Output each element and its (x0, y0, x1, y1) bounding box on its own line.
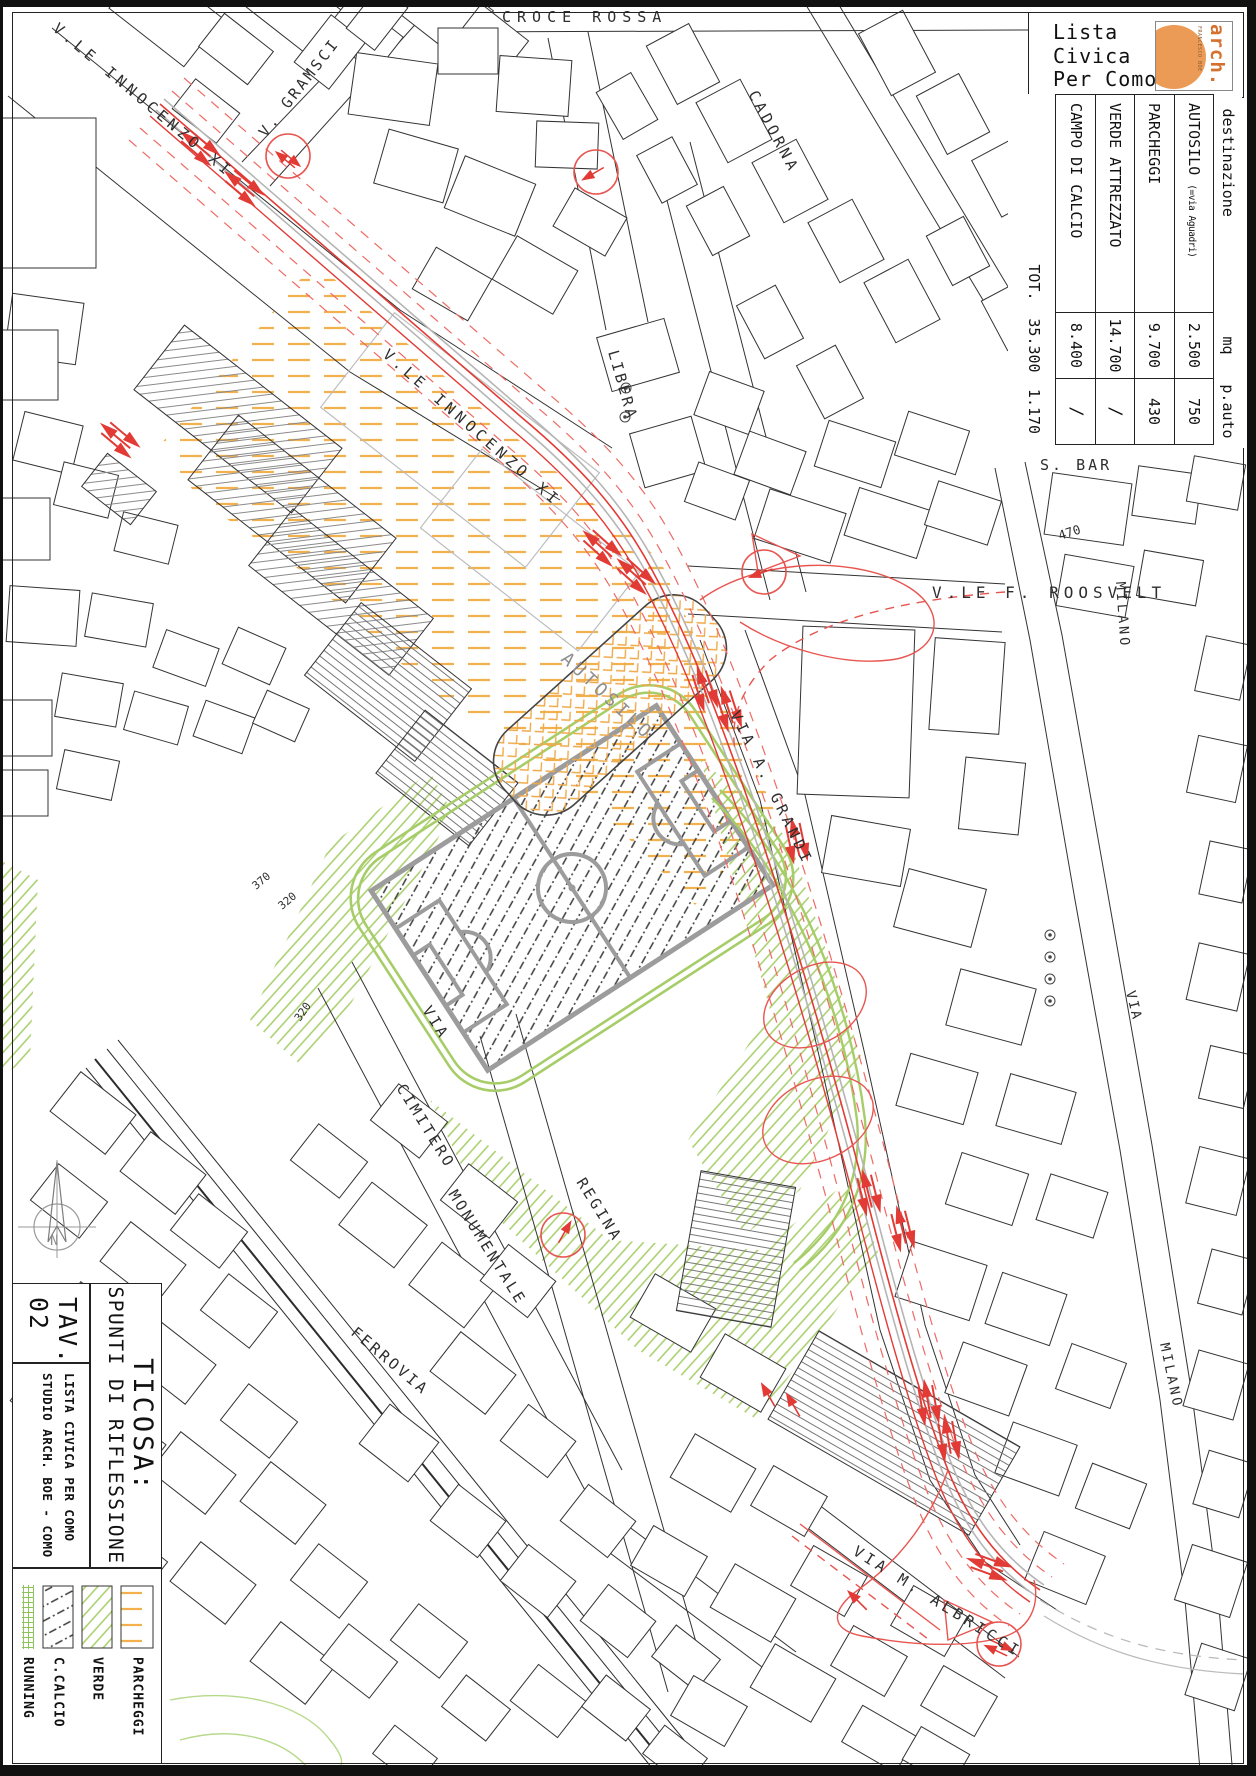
cell-pauto: 750 (1174, 379, 1213, 445)
scan-edge-bottom (0, 1765, 1256, 1776)
legend-label: RUNNING (20, 1657, 35, 1719)
program-table: destinazione mq p.auto AUTOSILO (=via Ag… (1012, 94, 1242, 445)
header-block: Lista Civica Per Como FRANCESCO BOE arch… (1028, 12, 1244, 98)
tav-label: TAV. (53, 1283, 90, 1363)
cell-mq: 2.500 (1174, 313, 1213, 379)
cell-name: AUTOSILO (=via Aguadri) (1174, 95, 1213, 313)
total-mq: 35.300 (1012, 313, 1056, 379)
street-label-roosvelt: V.LE F. ROOSVELT (932, 583, 1166, 602)
drawing-title: TICOSA: SPUNTI DI RIFLESSIONE (90, 1283, 162, 1568)
elevation-label-320: 320 (276, 890, 300, 913)
organization-name: Lista Civica Per Como (1053, 21, 1157, 92)
table-row-autosilo: AUTOSILO (=via Aguadri) 2.500 750 (1174, 95, 1213, 445)
total-label: TOT. (1012, 95, 1056, 313)
cell-pauto: / (1095, 379, 1134, 445)
cell-pauto: / (1056, 379, 1095, 445)
legend-label: C.CALCIO (51, 1657, 66, 1728)
title-sub: SPUNTI DI RIFLESSIONE (104, 1283, 127, 1568)
header-destinazione: destinazione (1214, 95, 1242, 313)
row-name: AUTOSILO (1185, 103, 1203, 175)
org-line3: Per Como (1053, 68, 1157, 92)
scan-edge-right (1247, 0, 1256, 1776)
legend-item-ccalcio: C.CALCIO (42, 1585, 74, 1728)
street-label-milano-upper: MILANO (1112, 581, 1133, 649)
table-row-parcheggi: PARCHEGGI 9.700 430 (1135, 95, 1174, 445)
cell-pauto: 430 (1135, 379, 1174, 445)
credit-line1: LISTA CIVICA PER COMO (58, 1373, 80, 1568)
table-header-row: destinazione mq p.auto (1214, 95, 1242, 445)
cell-name: VERDE ATTREZZATO (1095, 95, 1134, 313)
table-row-campo: CAMPO DI CALCIO 8.400 / (1056, 95, 1095, 445)
cell-name: CAMPO DI CALCIO (1056, 95, 1095, 313)
ccalcio-swatch (42, 1585, 74, 1649)
legend-label: PARCHEGGI (130, 1657, 145, 1736)
north-label: N (50, 1233, 58, 1249)
credit-line2: STUDIO ARCH. BOE - COMO (36, 1373, 58, 1568)
header-pauto: p.auto (1214, 379, 1242, 445)
table-row-verde: VERDE ATTREZZATO 14.700 / (1095, 95, 1134, 445)
elevation-label-370: 370 (250, 870, 274, 893)
logo-text: arch. (1206, 24, 1228, 86)
legend-item-running: RUNNING (20, 1585, 35, 1719)
row-note: (=via Aguadri) (1186, 184, 1197, 257)
parcheggi-swatch (120, 1585, 154, 1649)
credits-text: LISTA CIVICA PER COMO STUDIO ARCH. BOE -… (12, 1363, 90, 1568)
title-main: TICOSA: (127, 1283, 162, 1568)
legend-item-parcheggi: PARCHEGGI (120, 1585, 154, 1736)
street-label-via-upper: VIA (1122, 989, 1145, 1022)
verde-swatch (81, 1585, 113, 1649)
cell-mq: 8.400 (1056, 313, 1095, 379)
legend-label: VERDE (90, 1657, 105, 1701)
logo-subtext: FRANCESCO BOE (1196, 26, 1202, 72)
street-label-milano-lower: MILANO (1156, 1342, 1186, 1411)
running-swatch (21, 1585, 35, 1649)
tav-number: 02 (24, 1283, 53, 1363)
street-label-s-bar: S. BAR (1040, 456, 1112, 474)
total-pauto: 1.170 (1012, 379, 1056, 445)
cell-name: PARCHEGGI (1135, 95, 1174, 313)
legend: RUNNING C.CALCIO VERDE PARCHEGGI (12, 1568, 162, 1764)
street-label-croce-rossa: CROCE ROSSA (502, 8, 667, 26)
drawing-sheet: N V.LE INNOCENZO XI V.LE INNOCENZO XI V.… (0, 0, 1256, 1776)
header-mq: mq (1214, 313, 1242, 379)
arch-logo: FRANCESCO BOE arch. (1155, 21, 1233, 91)
scan-edge-left (0, 0, 3, 1776)
scan-edge-top (0, 0, 1256, 7)
cell-mq: 14.700 (1095, 313, 1134, 379)
org-line1: Lista (1053, 21, 1157, 45)
org-line2: Civica (1053, 45, 1157, 69)
tav-text: TAV. 02 (12, 1283, 90, 1363)
program-table-wrap: destinazione mq p.auto AUTOSILO (=via Ag… (1012, 94, 1242, 444)
legend-item-verde: VERDE (81, 1585, 113, 1701)
table-total-row: TOT. 35.300 1.170 (1012, 95, 1056, 445)
cell-mq: 9.700 (1135, 313, 1174, 379)
